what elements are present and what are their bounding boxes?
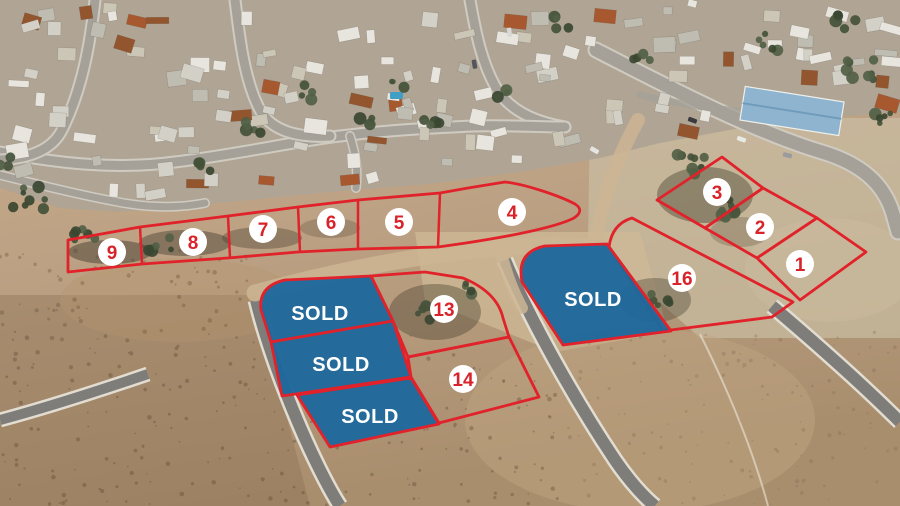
plot-number: 1 [795, 255, 806, 276]
swimming-pool [390, 92, 403, 99]
plot-marker-7: 7 [249, 215, 277, 243]
sold-label: SOLD [291, 303, 349, 325]
plot-number: 3 [712, 183, 723, 204]
plot-marker-9: 9 [98, 238, 126, 266]
plot-marker-2: 2 [746, 213, 774, 241]
plot-number: 2 [755, 218, 766, 239]
plot-number: 6 [326, 213, 337, 234]
sold-label: SOLD [312, 354, 370, 376]
plot-number: 4 [507, 203, 518, 224]
plot-marker-4: 4 [498, 198, 526, 226]
sold-label: SOLD [564, 289, 622, 311]
plot-marker-6: 6 [317, 208, 345, 236]
plot-marker-5: 5 [385, 208, 413, 236]
aerial-plot-map: SOLD SOLD SOLD SOLD 9 8 7 6 5 4 [0, 0, 900, 506]
plot-marker-3: 3 [703, 178, 731, 206]
plot-marker-13: 13 [430, 295, 458, 323]
plot-marker-8: 8 [179, 228, 207, 256]
aerial-photo: SOLD SOLD SOLD SOLD 9 8 7 6 5 4 [0, 0, 900, 506]
plot-number: 9 [107, 243, 118, 264]
plot-number: 8 [188, 233, 199, 254]
plot-number: 7 [258, 220, 269, 241]
plot-marker-14: 14 [449, 365, 477, 393]
plot-number: 13 [433, 300, 454, 321]
plot-marker-16: 16 [668, 264, 696, 292]
plot-number: 5 [394, 213, 405, 234]
plot-number: 14 [452, 370, 474, 391]
sold-label: SOLD [341, 406, 399, 428]
plot-marker-1: 1 [786, 250, 814, 278]
plot-number: 16 [671, 269, 692, 290]
